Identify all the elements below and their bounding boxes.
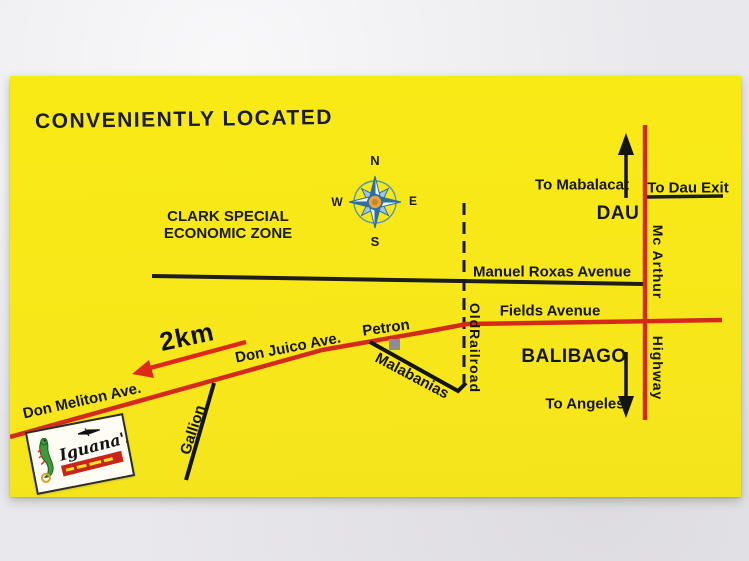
balibago-label: BALIBAGO — [521, 346, 626, 368]
clark-zone-label: CLARK SPECIAL ECONOMIC ZONE — [164, 208, 292, 242]
distance-arrow-icon — [132, 360, 154, 378]
to-dau-exit-label: To Dau Exit — [647, 180, 728, 197]
old-railroad-label-word2: Railroad — [467, 329, 483, 393]
manuel-roxas-label: Manuel Roxas Avenue — [473, 264, 631, 281]
clark-zone-line2: ECONOMIC ZONE — [164, 225, 292, 242]
mcarthur-label: Mc Arthur — [650, 225, 666, 300]
to-mabalacat-label: To Mabalacat — [535, 177, 629, 194]
clark-zone-line1: CLARK SPECIAL — [164, 208, 292, 225]
iguana-icon — [35, 438, 56, 483]
to-mabalacat-arrow-icon — [618, 133, 634, 155]
compass-w-label: W — [331, 195, 343, 209]
old-railroad-label-word1: Old — [467, 303, 483, 329]
photo-background: { "title": "CONVENIENTLY LOCATED", "comp… — [0, 0, 749, 561]
map-card: CONVENIENTLY LOCATED N S W E — [10, 76, 741, 497]
highway-label: Highway — [650, 336, 666, 401]
fields-avenue-label: Fields Avenue — [500, 303, 601, 320]
compass-s-label: S — [371, 234, 380, 249]
compass-e-label: E — [409, 194, 417, 208]
dau-label: DAU — [597, 203, 640, 225]
page-title: CONVENIENTLY LOCATED — [35, 106, 333, 134]
compass-rose-icon: N S W E — [330, 153, 420, 249]
to-angeles-label: To Angeles — [545, 396, 624, 413]
compass-n-label: N — [370, 153, 379, 168]
petron-marker — [389, 339, 400, 350]
